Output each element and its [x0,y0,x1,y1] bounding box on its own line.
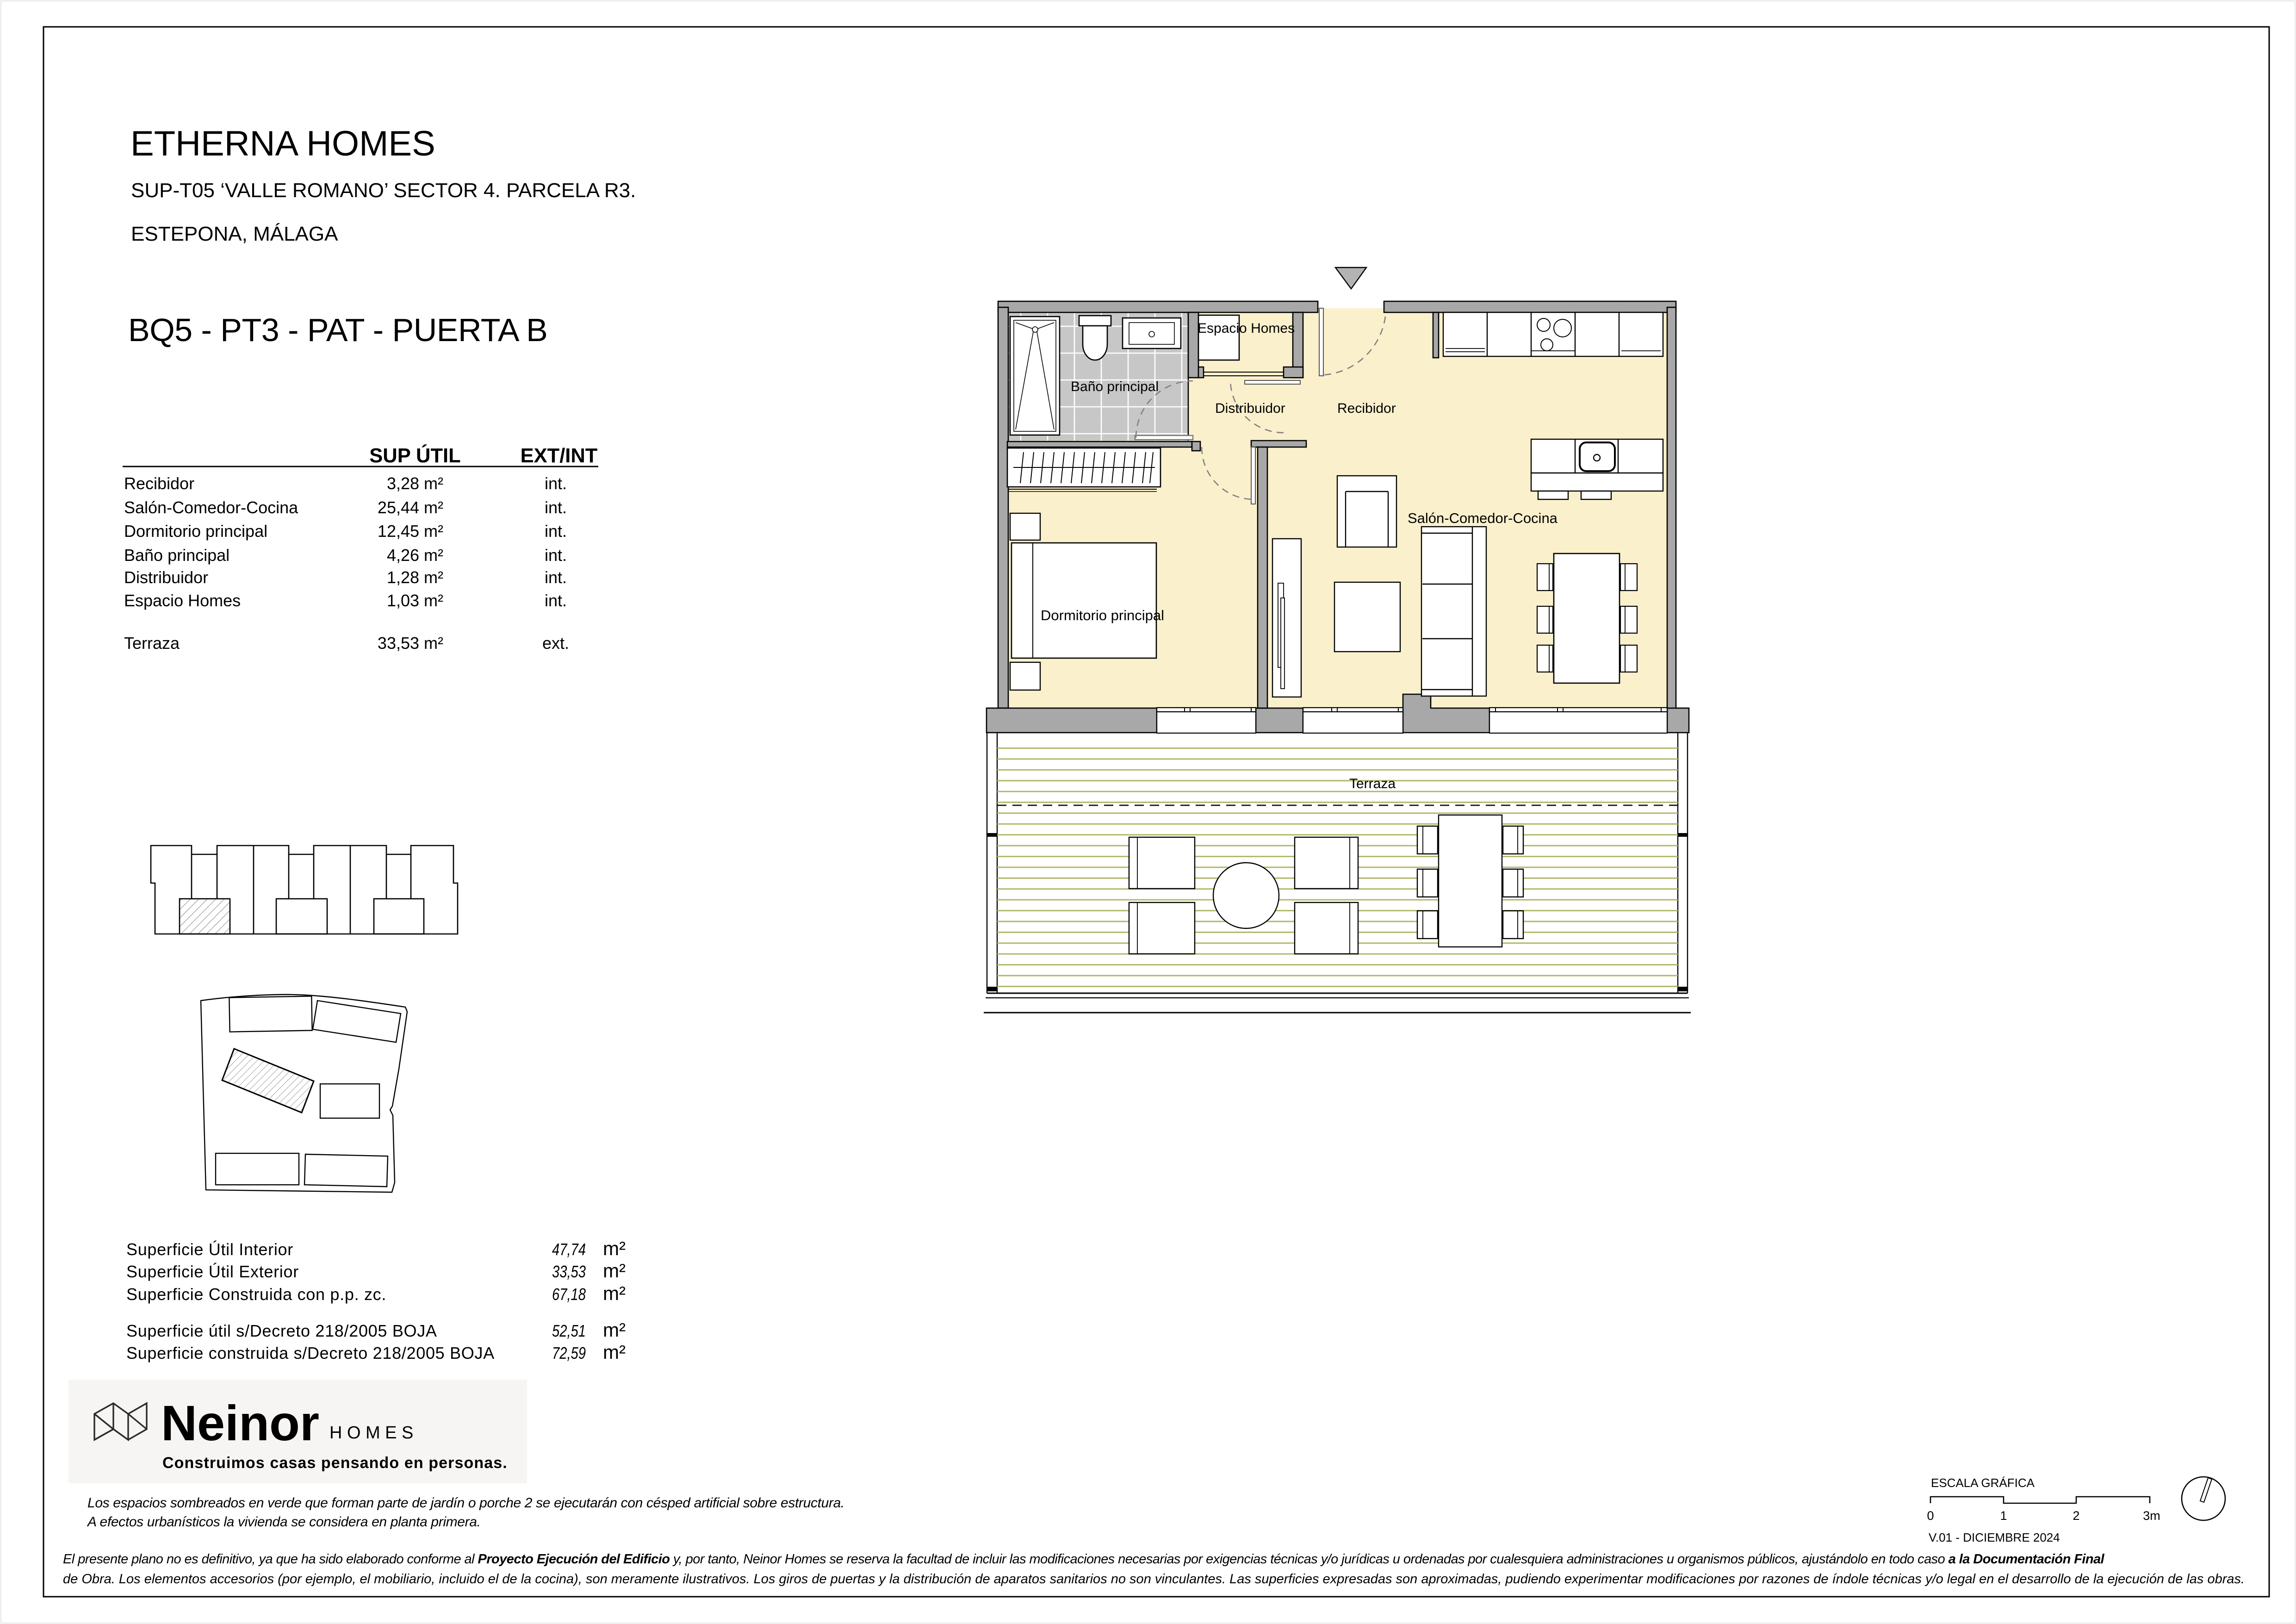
svg-text:int.: int. [545,522,567,541]
svg-text:int.: int. [545,498,567,517]
svg-text:Baño principal: Baño principal [1071,379,1159,394]
svg-text:Salón-Comedor-Cocina: Salón-Comedor-Cocina [124,498,298,517]
svg-text:V.01 - DICIEMBRE 2024: V.01 - DICIEMBRE 2024 [1929,1531,2060,1544]
svg-text:ESTEPONA, MÁLAGA: ESTEPONA, MÁLAGA [131,223,338,245]
svg-text:Superficie construida s/Decret: Superficie construida s/Decreto 218/2005… [126,1344,495,1363]
svg-text:Baño principal: Baño principal [124,546,230,565]
svg-text:33,53: 33,53 [552,1262,586,1281]
svg-text:ESCALA GRÁFICA: ESCALA GRÁFICA [1931,1476,2035,1490]
svg-text:Terraza: Terraza [1349,776,1396,791]
svg-text:SUP-T05 ‘VALLE ROMANO’ SECTOR: SUP-T05 ‘VALLE ROMANO’ SECTOR 4. PARCELA… [131,179,636,202]
svg-text:Distribuidor: Distribuidor [124,568,208,587]
svg-text:int.: int. [545,546,567,565]
svg-text:Los espacios sombreados en ver: Los espacios sombreados en verde que for… [87,1495,844,1511]
svg-text:1,03 m²: 1,03 m² [387,591,443,610]
svg-text:Espacio Homes: Espacio Homes [124,591,241,610]
svg-text:25,44 m²: 25,44 m² [378,498,443,517]
svg-text:BQ5 - PT3 - PAT - PUERTA B: BQ5 - PT3 - PAT - PUERTA B [128,312,547,348]
svg-text:Superficie Útil Exterior: Superficie Útil Exterior [126,1262,299,1281]
svg-text:1: 1 [2000,1509,2007,1523]
svg-text:12,45 m²: 12,45 m² [378,522,443,541]
svg-text:int.: int. [545,474,567,493]
svg-text:Superficie Construida con p.p.: Superficie Construida con p.p. zc. [126,1285,386,1304]
svg-text:ETHERNA HOMES: ETHERNA HOMES [130,124,435,163]
svg-text:47,74: 47,74 [552,1240,586,1259]
svg-text:3,28 m²: 3,28 m² [387,474,443,493]
svg-text:HOMES: HOMES [329,1423,418,1443]
svg-text:de Obra. Los elementos accesor: de Obra. Los elementos accesorios (por e… [63,1572,2245,1587]
svg-text:A efectos urbanísticos la vivi: A efectos urbanísticos la vivienda se co… [87,1514,481,1530]
svg-text:2: 2 [2073,1509,2079,1523]
svg-text:Superficie útil s/Decreto 218/: Superficie útil s/Decreto 218/2005 BOJA [126,1321,437,1340]
svg-text:4,26 m²: 4,26 m² [387,546,443,565]
svg-text:Distribuidor: Distribuidor [1215,401,1285,416]
svg-text:1,28 m²: 1,28 m² [387,568,443,587]
svg-text:Neinor: Neinor [161,1395,319,1451]
svg-text:m²: m² [603,1319,626,1341]
svg-text:m²: m² [603,1238,626,1259]
svg-text:int.: int. [545,568,567,587]
svg-text:m²: m² [603,1341,626,1363]
svg-text:Salón-Comedor-Cocina: Salón-Comedor-Cocina [1408,510,1558,526]
svg-text:Terraza: Terraza [124,634,180,653]
svg-text:ext.: ext. [542,634,569,653]
svg-text:33,53 m²: 33,53 m² [378,634,443,653]
svg-text:Recibidor: Recibidor [124,474,194,493]
svg-text:EXT/INT: EXT/INT [521,445,598,467]
svg-text:Recibidor: Recibidor [1337,401,1396,416]
svg-text:El presente plano no es defini: El presente plano no es definitivo, ya q… [63,1552,2105,1567]
svg-text:Superficie Útil Interior: Superficie Útil Interior [126,1240,293,1259]
svg-text:3m: 3m [2143,1509,2160,1523]
svg-text:Dormitorio principal: Dormitorio principal [124,522,267,541]
svg-text:Construimos casas pensando en: Construimos casas pensando en personas. [162,1454,508,1472]
svg-text:m²: m² [603,1260,626,1282]
svg-text:72,59: 72,59 [552,1344,586,1363]
svg-text:SUP ÚTIL: SUP ÚTIL [369,444,460,467]
svg-text:Espacio Homes: Espacio Homes [1198,321,1295,336]
svg-text:67,18: 67,18 [552,1285,586,1304]
svg-text:52,51: 52,51 [552,1321,586,1340]
svg-text:Dormitorio principal: Dormitorio principal [1041,607,1164,623]
svg-text:0: 0 [1927,1509,1934,1523]
svg-text:int.: int. [545,591,567,610]
svg-text:m²: m² [603,1282,626,1304]
